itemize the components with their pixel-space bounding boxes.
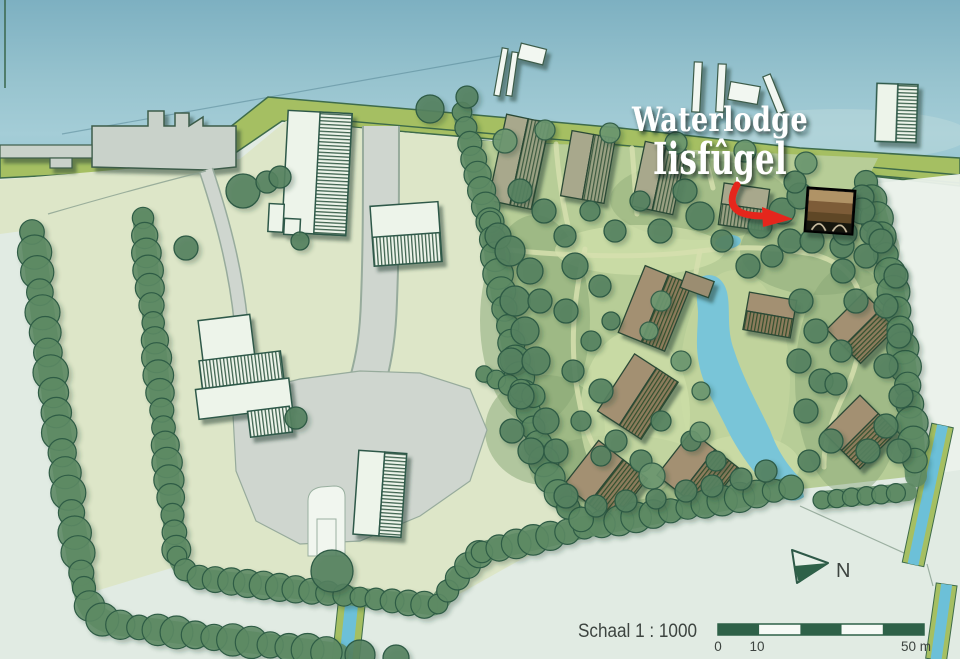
north-label: N: [836, 560, 850, 582]
scalebar-segment: [842, 624, 883, 635]
scalebar-segment: [883, 624, 924, 635]
scalebar-segment: [718, 624, 759, 635]
driveway-loop: [308, 486, 345, 556]
shed-building: [353, 450, 407, 537]
barn-two: [370, 202, 442, 267]
quay: [0, 145, 92, 158]
scale-tick-0: 0: [714, 639, 722, 654]
title: Waterlodge Iisfûgel: [631, 100, 808, 185]
site-plan-drawing: Waterlodge Iisfûgel N Schaal 1 : 1000 0 …: [0, 0, 960, 659]
site-map: Waterlodge Iisfûgel N Schaal 1 : 1000 0 …: [0, 0, 960, 659]
boathouse: [875, 83, 918, 142]
scale-tick-50m: 50 m: [901, 639, 931, 654]
highlighted-lodge: [805, 187, 856, 234]
scalebar-segment: [800, 624, 841, 635]
scale-tick-10: 10: [749, 639, 764, 654]
scale-label: Schaal 1 : 1000: [578, 621, 697, 642]
scalebar-segment: [759, 624, 800, 635]
title-line-2: Iisfûgel: [653, 134, 787, 185]
